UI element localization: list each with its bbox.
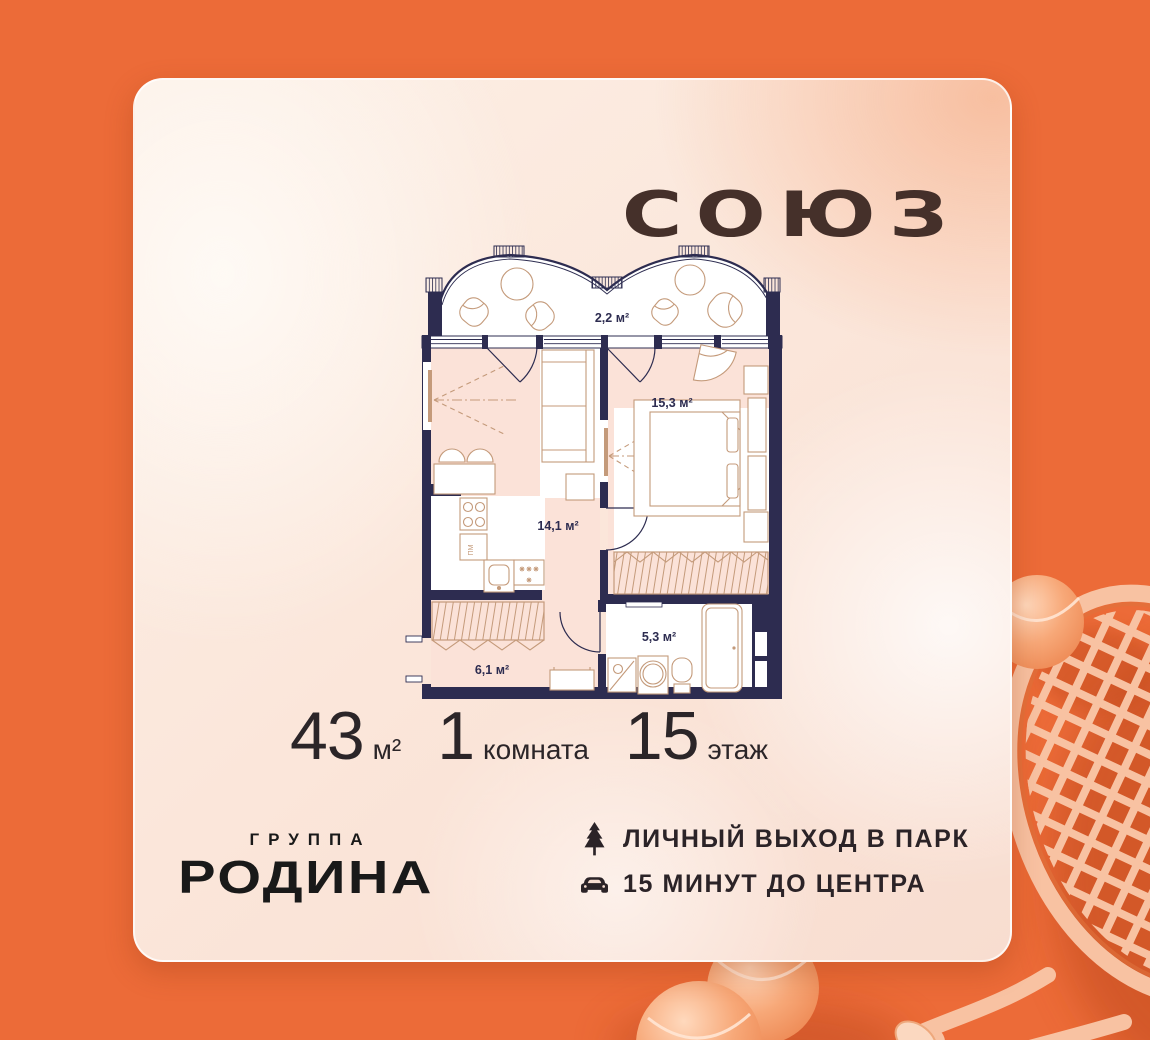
stat-floor-unit: этаж xyxy=(708,734,768,766)
apartment-stats: 43 м² 1 комната 15 этаж xyxy=(290,702,768,770)
living-area-label: 14,1 м² xyxy=(537,519,578,533)
stat-rooms-value: 1 xyxy=(437,702,474,770)
dishwasher-label: ПМ xyxy=(468,544,475,555)
developer-logo: ГРУППА РОДИНА xyxy=(176,830,436,900)
project-logo: СОЮЗ xyxy=(622,184,961,246)
stat-floor: 15 этаж xyxy=(625,702,768,770)
developer-logo-top: ГРУППА xyxy=(176,830,436,850)
stat-floor-value: 15 xyxy=(625,702,699,770)
developer-logo-bottom: РОДИНА xyxy=(147,854,464,900)
car-icon xyxy=(579,875,609,895)
hallway-area-label: 6,1 м² xyxy=(475,663,509,677)
listing-card: СОЮЗ xyxy=(133,78,1012,962)
stat-area-value: 43 xyxy=(290,702,364,770)
stat-area-unit: м² xyxy=(373,734,402,766)
feature-park-label: ЛИЧНЫЙ ВЫХОД В ПАРК xyxy=(623,825,969,854)
feature-list: ЛИЧНЫЙ ВЫХОД В ПАРК 15 МИНУТ ДО ЦЕНТРА xyxy=(579,822,969,899)
feature-center: 15 МИНУТ ДО ЦЕНТРА xyxy=(579,870,969,899)
balcony-area-label: 2,2 м² xyxy=(595,311,629,325)
tree-icon xyxy=(579,822,609,857)
bedroom-area-label: 15,3 м² xyxy=(651,396,692,410)
stat-rooms: 1 комната xyxy=(437,702,589,770)
window-wall xyxy=(422,335,782,349)
feature-center-label: 15 МИНУТ ДО ЦЕНТРА xyxy=(623,870,926,899)
stat-area: 43 м² xyxy=(290,702,401,770)
stat-rooms-unit: комната xyxy=(483,734,589,766)
floorplan: 2,2 м² 14,1 м² 15,3 м² 5,3 м² 6,1 м² ПМ xyxy=(404,240,794,702)
feature-park: ЛИЧНЫЙ ВЫХОД В ПАРК xyxy=(579,822,969,857)
bathroom-area-label: 5,3 м² xyxy=(642,630,676,644)
poster: СОЮЗ xyxy=(0,0,1150,1040)
